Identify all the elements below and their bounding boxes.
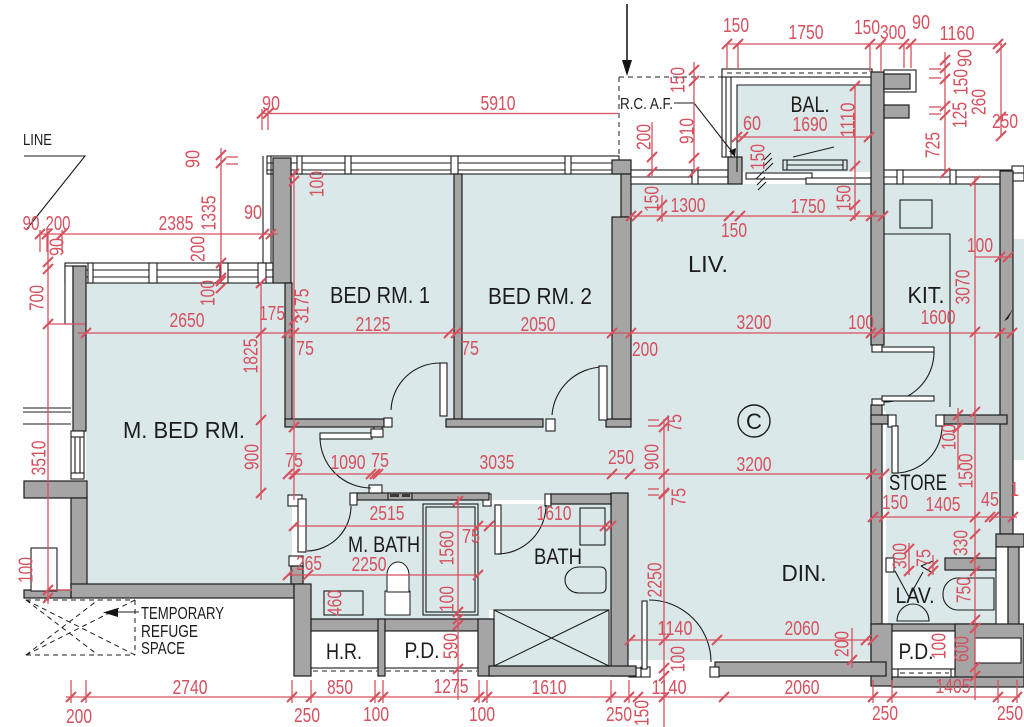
svg-text:1825: 1825 bbox=[240, 339, 262, 374]
svg-text:2385: 2385 bbox=[159, 213, 194, 235]
svg-text:150: 150 bbox=[747, 144, 769, 170]
svg-text:75: 75 bbox=[668, 488, 690, 506]
svg-text:90: 90 bbox=[912, 12, 930, 34]
svg-text:100: 100 bbox=[469, 704, 495, 726]
svg-text:250: 250 bbox=[997, 703, 1023, 725]
svg-text:100: 100 bbox=[436, 586, 458, 612]
svg-text:LINE: LINE bbox=[23, 132, 52, 149]
svg-text:250: 250 bbox=[294, 705, 320, 727]
svg-text:BED RM. 1: BED RM. 1 bbox=[330, 282, 430, 308]
svg-text:2060: 2060 bbox=[785, 618, 820, 640]
svg-text:150: 150 bbox=[667, 67, 689, 93]
svg-text:150: 150 bbox=[641, 186, 663, 212]
svg-text:75: 75 bbox=[296, 338, 314, 360]
svg-text:DIN.: DIN. bbox=[782, 560, 827, 586]
svg-text:5910: 5910 bbox=[481, 93, 516, 115]
svg-text:900: 900 bbox=[641, 444, 663, 470]
svg-text:300: 300 bbox=[880, 22, 906, 44]
svg-text:2250: 2250 bbox=[644, 563, 666, 598]
svg-text:175: 175 bbox=[259, 303, 285, 325]
svg-text:1610: 1610 bbox=[532, 677, 567, 699]
svg-text:100: 100 bbox=[363, 704, 389, 726]
svg-text:200: 200 bbox=[633, 124, 655, 150]
svg-text:1610: 1610 bbox=[537, 503, 572, 525]
svg-text:265: 265 bbox=[296, 553, 322, 575]
svg-text:1160: 1160 bbox=[940, 23, 975, 45]
svg-text:1275: 1275 bbox=[434, 676, 469, 698]
svg-text:150: 150 bbox=[833, 185, 855, 211]
svg-text:75: 75 bbox=[462, 526, 480, 548]
svg-text:2050: 2050 bbox=[521, 314, 556, 336]
svg-text:150: 150 bbox=[631, 700, 653, 726]
svg-text:3175: 3175 bbox=[291, 289, 313, 324]
svg-text:460: 460 bbox=[324, 590, 346, 616]
svg-text:850: 850 bbox=[327, 677, 353, 699]
svg-text:90: 90 bbox=[182, 150, 204, 168]
svg-text:1750: 1750 bbox=[789, 22, 824, 44]
svg-text:1405: 1405 bbox=[926, 494, 961, 516]
svg-text:250: 250 bbox=[606, 704, 632, 726]
svg-text:LAV.: LAV. bbox=[896, 583, 935, 608]
svg-text:3510: 3510 bbox=[28, 441, 50, 476]
svg-text:150: 150 bbox=[882, 492, 908, 514]
svg-text:2740: 2740 bbox=[173, 677, 208, 699]
svg-text:1335: 1335 bbox=[198, 196, 220, 231]
svg-text:3200: 3200 bbox=[737, 454, 772, 476]
svg-text:45: 45 bbox=[981, 489, 999, 511]
svg-text:1405: 1405 bbox=[936, 676, 971, 698]
svg-text:260: 260 bbox=[968, 89, 990, 115]
svg-text:90: 90 bbox=[23, 213, 40, 235]
svg-text:1600: 1600 bbox=[921, 307, 956, 329]
svg-text:1500: 1500 bbox=[955, 454, 977, 489]
svg-text:590: 590 bbox=[440, 633, 462, 659]
svg-text:100: 100 bbox=[667, 646, 689, 672]
svg-text:700: 700 bbox=[26, 285, 48, 311]
svg-text:100: 100 bbox=[306, 171, 328, 197]
svg-text:2060: 2060 bbox=[785, 677, 820, 699]
svg-text:725: 725 bbox=[922, 132, 944, 158]
svg-text:200: 200 bbox=[187, 236, 209, 262]
svg-text:3070: 3070 bbox=[952, 270, 974, 305]
svg-text:1: 1 bbox=[1010, 479, 1019, 501]
svg-text:1300: 1300 bbox=[671, 195, 706, 217]
svg-text:100: 100 bbox=[967, 235, 993, 257]
svg-text:1560: 1560 bbox=[436, 531, 458, 566]
svg-text:3035: 3035 bbox=[480, 452, 515, 474]
svg-text:BATH: BATH bbox=[534, 544, 582, 569]
svg-text:90: 90 bbox=[46, 238, 68, 256]
svg-text:60: 60 bbox=[743, 113, 761, 135]
svg-text:250: 250 bbox=[992, 111, 1018, 133]
svg-text:BED RM. 2: BED RM. 2 bbox=[488, 283, 592, 309]
svg-text:750: 750 bbox=[953, 577, 975, 603]
svg-text:1690: 1690 bbox=[793, 114, 828, 136]
svg-text:M. BED RM.: M. BED RM. bbox=[123, 417, 245, 443]
svg-text:100: 100 bbox=[928, 633, 950, 659]
svg-text:2125: 2125 bbox=[356, 314, 391, 336]
svg-text:330: 330 bbox=[950, 530, 972, 556]
svg-text:H.R.: H.R. bbox=[326, 639, 362, 664]
svg-text:150: 150 bbox=[854, 17, 880, 39]
svg-text:200: 200 bbox=[46, 213, 71, 235]
svg-text:910: 910 bbox=[676, 118, 698, 144]
svg-text:SPACE: SPACE bbox=[141, 638, 185, 658]
svg-text:75: 75 bbox=[285, 450, 303, 472]
svg-text:P.D.: P.D. bbox=[405, 638, 440, 663]
svg-text:90: 90 bbox=[244, 202, 262, 224]
svg-text:2515: 2515 bbox=[370, 503, 405, 525]
svg-text:100: 100 bbox=[848, 312, 874, 334]
svg-text:200: 200 bbox=[66, 706, 92, 727]
svg-text:1110: 1110 bbox=[837, 103, 859, 138]
svg-text:300: 300 bbox=[889, 543, 911, 569]
svg-text:90: 90 bbox=[262, 93, 280, 115]
svg-text:75: 75 bbox=[371, 450, 389, 472]
svg-text:TEMPORARY: TEMPORARY bbox=[141, 603, 224, 623]
svg-text:600: 600 bbox=[951, 636, 973, 662]
svg-text:75: 75 bbox=[913, 549, 935, 567]
svg-text:900: 900 bbox=[241, 444, 263, 470]
svg-text:KIT.: KIT. bbox=[908, 282, 945, 308]
svg-text:R.C. A.F.: R.C. A.F. bbox=[620, 96, 673, 113]
svg-text:2250: 2250 bbox=[352, 554, 387, 576]
svg-text:90: 90 bbox=[954, 49, 976, 67]
svg-text:100: 100 bbox=[15, 557, 37, 583]
svg-text:200: 200 bbox=[831, 631, 853, 657]
svg-text:C: C bbox=[746, 409, 762, 434]
svg-text:3200: 3200 bbox=[737, 312, 772, 334]
svg-text:150: 150 bbox=[721, 220, 747, 242]
svg-text:75: 75 bbox=[461, 338, 479, 360]
svg-text:250: 250 bbox=[872, 703, 898, 725]
svg-text:100: 100 bbox=[197, 280, 219, 306]
svg-text:100: 100 bbox=[938, 424, 960, 450]
svg-text:1140: 1140 bbox=[652, 677, 687, 699]
svg-text:250: 250 bbox=[608, 447, 634, 469]
svg-text:150: 150 bbox=[723, 15, 749, 37]
svg-text:1090: 1090 bbox=[331, 452, 366, 474]
svg-text:LIV.: LIV. bbox=[688, 251, 728, 277]
svg-text:1750: 1750 bbox=[791, 196, 826, 218]
svg-text:200: 200 bbox=[632, 339, 658, 361]
svg-text:2650: 2650 bbox=[170, 310, 205, 332]
svg-text:1140: 1140 bbox=[658, 618, 693, 640]
